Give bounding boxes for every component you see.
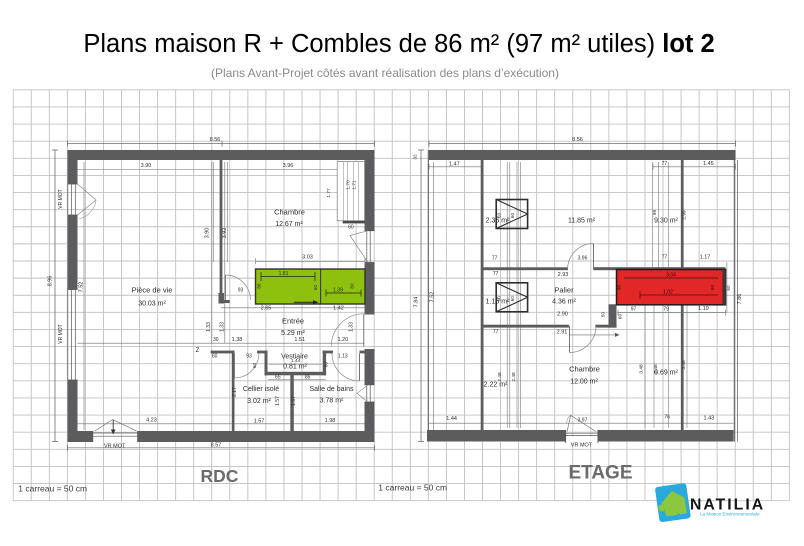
svg-text:90: 90 (616, 285, 621, 291)
svg-text:0.81 m²: 0.81 m² (283, 364, 307, 371)
svg-text:7.84: 7.84 (414, 297, 420, 308)
svg-text:VR MOT: VR MOT (58, 189, 64, 208)
svg-text:60: 60 (726, 285, 731, 291)
svg-text:3.48: 3.48 (681, 360, 687, 370)
svg-text:60: 60 (252, 363, 257, 369)
svg-text:1.44: 1.44 (446, 416, 457, 422)
svg-text:1.81: 1.81 (279, 271, 289, 277)
svg-text:65: 65 (275, 375, 281, 381)
svg-text:1.02: 1.02 (663, 289, 673, 295)
svg-text:1.33: 1.33 (219, 322, 225, 332)
svg-text:VR MOT: VR MOT (571, 443, 593, 449)
svg-text:1.57: 1.57 (275, 396, 281, 406)
svg-text:1 carreau = 50 cm: 1 carreau = 50 cm (378, 483, 447, 493)
svg-text:3.02 m²: 3.02 m² (247, 398, 271, 405)
svg-text:1.57: 1.57 (291, 396, 297, 406)
svg-text:1.47: 1.47 (449, 161, 460, 167)
svg-text:77: 77 (493, 271, 499, 277)
svg-text:60: 60 (212, 354, 218, 360)
svg-text:2.65: 2.65 (261, 305, 272, 311)
svg-text:VR MOT: VR MOT (58, 324, 64, 343)
svg-text:1.51: 1.51 (294, 337, 305, 343)
svg-text:8.96: 8.96 (48, 276, 54, 287)
svg-text:La Maison Environnementale: La Maison Environnementale (700, 512, 760, 517)
svg-text:Palier: Palier (554, 286, 574, 295)
svg-text:8.56: 8.56 (572, 137, 583, 143)
svg-text:32: 32 (413, 154, 419, 160)
svg-text:3.92: 3.92 (222, 228, 228, 239)
svg-text:3.97: 3.97 (578, 418, 588, 424)
svg-text:3.96: 3.96 (283, 163, 294, 169)
svg-text:77: 77 (492, 256, 498, 262)
svg-text:60: 60 (510, 296, 515, 302)
svg-text:1.71: 1.71 (352, 180, 358, 190)
svg-text:3.04: 3.04 (666, 272, 676, 278)
svg-text:30: 30 (213, 337, 219, 343)
svg-text:1.20: 1.20 (337, 337, 348, 343)
svg-text:12.00 m²: 12.00 m² (570, 379, 598, 386)
svg-text:2.22 m²: 2.22 m² (484, 382, 508, 389)
svg-text:1.45: 1.45 (703, 161, 714, 167)
svg-text:3.48: 3.48 (653, 364, 659, 374)
svg-text:Salle de bains: Salle de bains (310, 386, 354, 393)
svg-text:8.57: 8.57 (211, 442, 222, 448)
svg-text:Chambre: Chambre (274, 208, 305, 217)
svg-text:Entrée: Entrée (282, 317, 304, 326)
svg-text:1.57: 1.57 (254, 418, 265, 424)
svg-text:1.38: 1.38 (232, 337, 243, 343)
svg-text:Z: Z (196, 348, 200, 354)
svg-text:7.52: 7.52 (79, 282, 85, 293)
svg-text:1.15 m²: 1.15 m² (486, 299, 510, 306)
svg-text:93: 93 (246, 354, 252, 360)
svg-text:RDC: RDC (201, 466, 239, 486)
svg-text:1.39: 1.39 (333, 288, 343, 294)
svg-text:1.42: 1.42 (333, 305, 344, 311)
svg-text:1.70: 1.70 (346, 180, 352, 190)
svg-text:7.52: 7.52 (430, 292, 436, 303)
svg-text:ETAGE: ETAGE (568, 463, 632, 484)
svg-text:1.44: 1.44 (291, 358, 301, 364)
svg-text:2.91: 2.91 (557, 330, 568, 336)
svg-text:1.13: 1.13 (338, 354, 348, 360)
svg-text:3.48: 3.48 (639, 364, 645, 374)
svg-text:60: 60 (617, 314, 622, 320)
svg-text:1 carreau = 50 cm: 1 carreau = 50 cm (18, 484, 87, 494)
svg-text:60: 60 (510, 213, 515, 219)
svg-text:Cellier isolé: Cellier isolé (243, 386, 279, 393)
svg-text:12.67 m²: 12.67 m² (275, 221, 303, 228)
svg-text:4.36 m²: 4.36 m² (552, 299, 576, 306)
svg-text:Chambre: Chambre (569, 365, 600, 374)
svg-text:VR MOT: VR MOT (104, 444, 126, 450)
svg-text:80: 80 (350, 283, 355, 289)
svg-text:8.56: 8.56 (210, 137, 221, 143)
svg-text:60: 60 (313, 285, 318, 291)
svg-text:2.17: 2.17 (232, 387, 238, 397)
svg-text:60: 60 (348, 225, 354, 231)
svg-text:85: 85 (305, 375, 311, 381)
svg-text:99: 99 (652, 210, 658, 216)
svg-text:90: 90 (710, 285, 715, 291)
svg-text:50: 50 (600, 312, 605, 318)
svg-text:77: 77 (662, 161, 668, 167)
svg-text:3.90: 3.90 (141, 163, 152, 169)
svg-text:2.93: 2.93 (558, 272, 569, 278)
svg-text:7.86: 7.86 (737, 294, 743, 305)
svg-text:1.98: 1.98 (325, 418, 336, 424)
svg-text:9.30 m²: 9.30 m² (654, 218, 678, 225)
svg-text:2.99: 2.99 (681, 210, 687, 220)
svg-text:1.33: 1.33 (206, 322, 212, 332)
svg-text:1.19: 1.19 (698, 306, 709, 312)
svg-text:2.48: 2.48 (497, 372, 503, 382)
svg-text:1.17: 1.17 (700, 255, 711, 261)
svg-text:3.90: 3.90 (204, 228, 210, 239)
svg-text:1.33: 1.33 (349, 322, 355, 332)
svg-text:30.03 m²: 30.03 m² (138, 301, 166, 308)
svg-text:3.03: 3.03 (302, 255, 313, 261)
svg-text:60: 60 (324, 362, 329, 368)
svg-text:Pièce de vie: Pièce de vie (132, 286, 173, 295)
svg-text:77: 77 (493, 329, 499, 335)
svg-text:3.78 m²: 3.78 m² (320, 398, 344, 405)
svg-text:11.85 m²: 11.85 m² (568, 218, 596, 225)
svg-text:2.48: 2.48 (511, 372, 517, 382)
svg-text:77: 77 (662, 255, 668, 261)
svg-text:3.96: 3.96 (578, 256, 588, 262)
svg-text:93: 93 (238, 288, 244, 294)
svg-text:4.23: 4.23 (146, 418, 157, 424)
svg-text:86: 86 (257, 283, 262, 289)
svg-text:5.29 m²: 5.29 m² (281, 330, 305, 337)
svg-text:79: 79 (663, 306, 669, 312)
svg-text:76: 76 (664, 415, 670, 421)
svg-text:1.43: 1.43 (704, 416, 715, 422)
svg-text:2.36 m²: 2.36 m² (486, 218, 510, 225)
svg-text:1.77: 1.77 (326, 188, 332, 198)
svg-text:2.90: 2.90 (557, 312, 568, 318)
svg-text:97: 97 (631, 306, 637, 312)
